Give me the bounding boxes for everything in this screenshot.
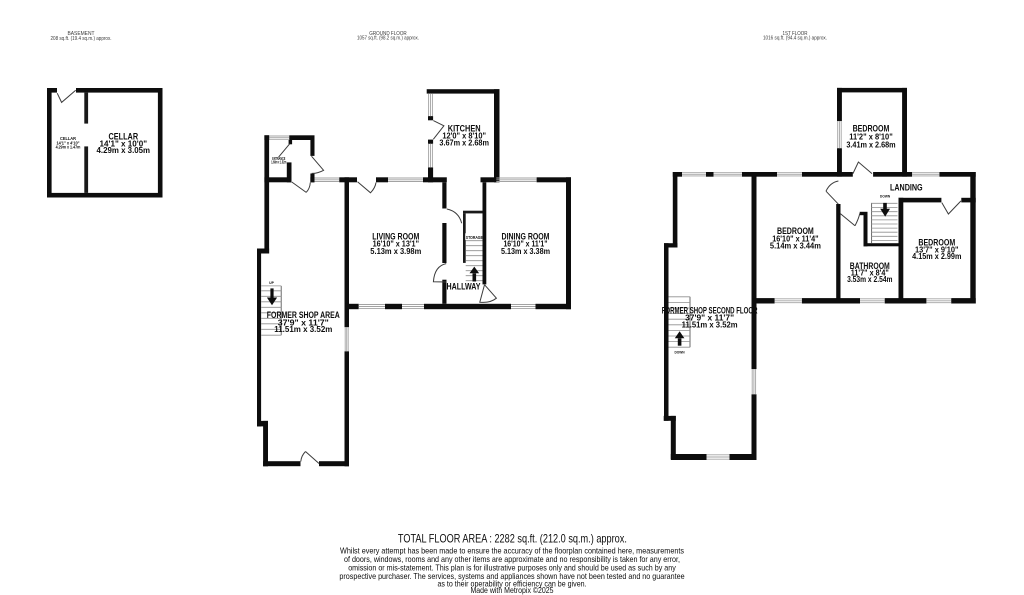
svg-text:208 sq.ft. (19.4 sq.m.) approx: 208 sq.ft. (19.4 sq.m.) approx. xyxy=(51,36,112,42)
svg-text:Made with Metropix ©2025: Made with Metropix ©2025 xyxy=(470,585,553,595)
svg-text:TOTAL FLOOR AREA : 2282 sq.ft.: TOTAL FLOOR AREA : 2282 sq.ft. (212.0 sq… xyxy=(398,532,627,545)
svg-text:5.14m x 3.44m: 5.14m x 3.44m xyxy=(770,240,821,250)
svg-text:11.51m x 3.52m: 11.51m x 3.52m xyxy=(682,319,738,329)
svg-text:4.29m x 3.05m: 4.29m x 3.05m xyxy=(97,145,151,155)
svg-text:3.53m x 2.54m: 3.53m x 2.54m xyxy=(847,274,893,284)
svg-text:LANDING: LANDING xyxy=(890,183,923,193)
svg-text:3.41m x 2.68m: 3.41m x 2.68m xyxy=(846,139,896,149)
svg-text:4.15m x 2.99m: 4.15m x 2.99m xyxy=(912,251,962,261)
svg-text:4.29m x 1.47m: 4.29m x 1.47m xyxy=(56,145,81,150)
svg-text:1016 sq.ft. (94.4 sq.m.) appro: 1016 sq.ft. (94.4 sq.m.) approx. xyxy=(763,36,827,42)
svg-text:UP: UP xyxy=(269,281,274,285)
svg-text:1.68m x 1.52m: 1.68m x 1.52m xyxy=(271,160,286,165)
svg-text:HALLWAY: HALLWAY xyxy=(447,282,481,292)
svg-text:DOWN: DOWN xyxy=(880,195,891,199)
svg-text:5.13m x 3.38m: 5.13m x 3.38m xyxy=(501,246,550,256)
svg-text:STORAGE: STORAGE xyxy=(466,235,483,240)
svg-text:5.13m x 3.98m: 5.13m x 3.98m xyxy=(370,246,421,256)
svg-text:DOWN: DOWN xyxy=(674,351,685,355)
svg-text:3.67m x 2.68m: 3.67m x 2.68m xyxy=(439,138,489,148)
svg-text:11.51m x 3.52m: 11.51m x 3.52m xyxy=(274,324,333,334)
svg-text:1057 sq.ft. (98.2 sq.m.) appro: 1057 sq.ft. (98.2 sq.m.) approx. xyxy=(357,36,419,42)
